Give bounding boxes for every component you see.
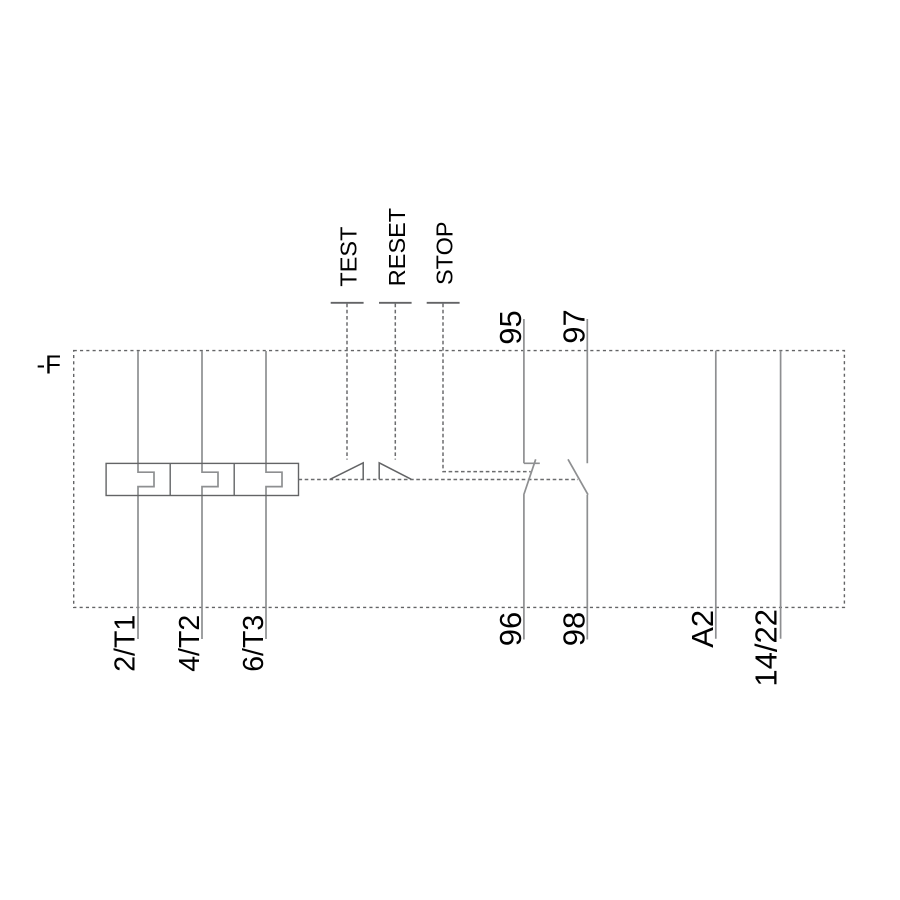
svg-text:2/T1: 2/T1 <box>110 615 142 672</box>
svg-text:14/22: 14/22 <box>749 609 784 687</box>
svg-text:95: 95 <box>493 310 528 344</box>
svg-text:97: 97 <box>556 309 591 343</box>
svg-text:98: 98 <box>556 612 591 646</box>
svg-text:6/T3: 6/T3 <box>238 615 270 672</box>
svg-text:RESET: RESET <box>384 208 410 286</box>
svg-text:96: 96 <box>493 612 528 646</box>
svg-text:A2: A2 <box>685 610 720 648</box>
svg-text:4/T2: 4/T2 <box>174 615 206 672</box>
svg-text:-F: -F <box>37 350 62 380</box>
svg-text:STOP: STOP <box>432 221 458 285</box>
svg-text:TEST: TEST <box>336 227 362 287</box>
